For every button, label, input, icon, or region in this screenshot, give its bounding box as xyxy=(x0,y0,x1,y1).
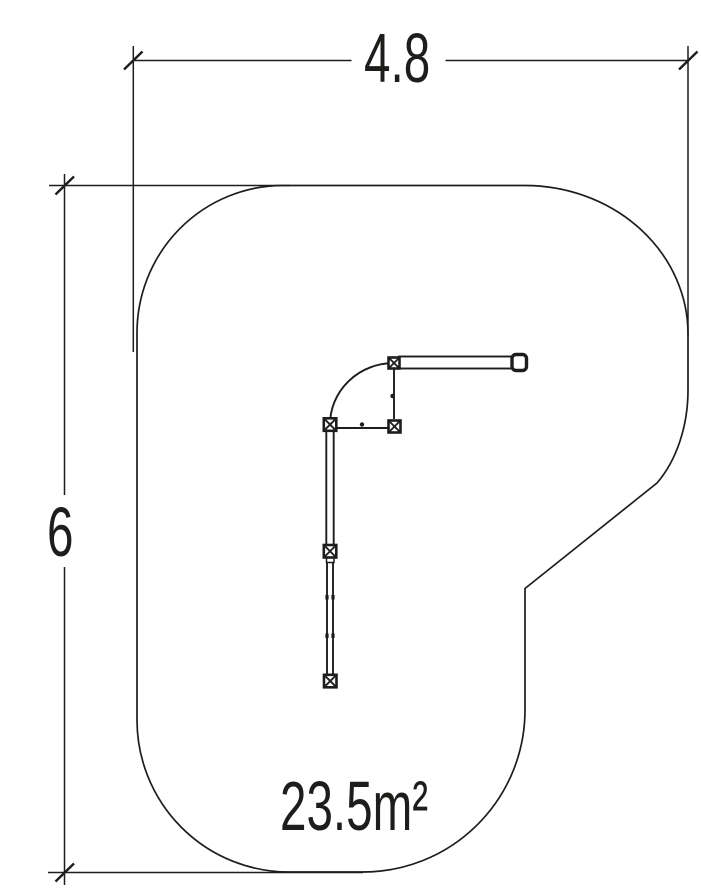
post-marker xyxy=(324,418,337,431)
width-dimension-label: 4.8 xyxy=(364,19,430,97)
platform-quarter-arc xyxy=(330,363,394,425)
plan-drawing: 4.8 6 xyxy=(0,0,701,888)
platform-point-marker xyxy=(390,394,394,398)
equipment-plan xyxy=(324,355,527,688)
area-label: 23.5m² xyxy=(280,767,428,845)
post-marker xyxy=(324,675,337,688)
post-marker xyxy=(324,545,337,558)
overhead-beam xyxy=(399,357,516,369)
plan-drawing-svg: 4.8 6 xyxy=(0,0,701,888)
post-marker xyxy=(389,358,400,369)
platform-point-marker xyxy=(360,422,364,426)
post-marker xyxy=(389,421,401,433)
beam-end-cap xyxy=(512,355,527,371)
height-dimension-label: 6 xyxy=(47,493,73,571)
